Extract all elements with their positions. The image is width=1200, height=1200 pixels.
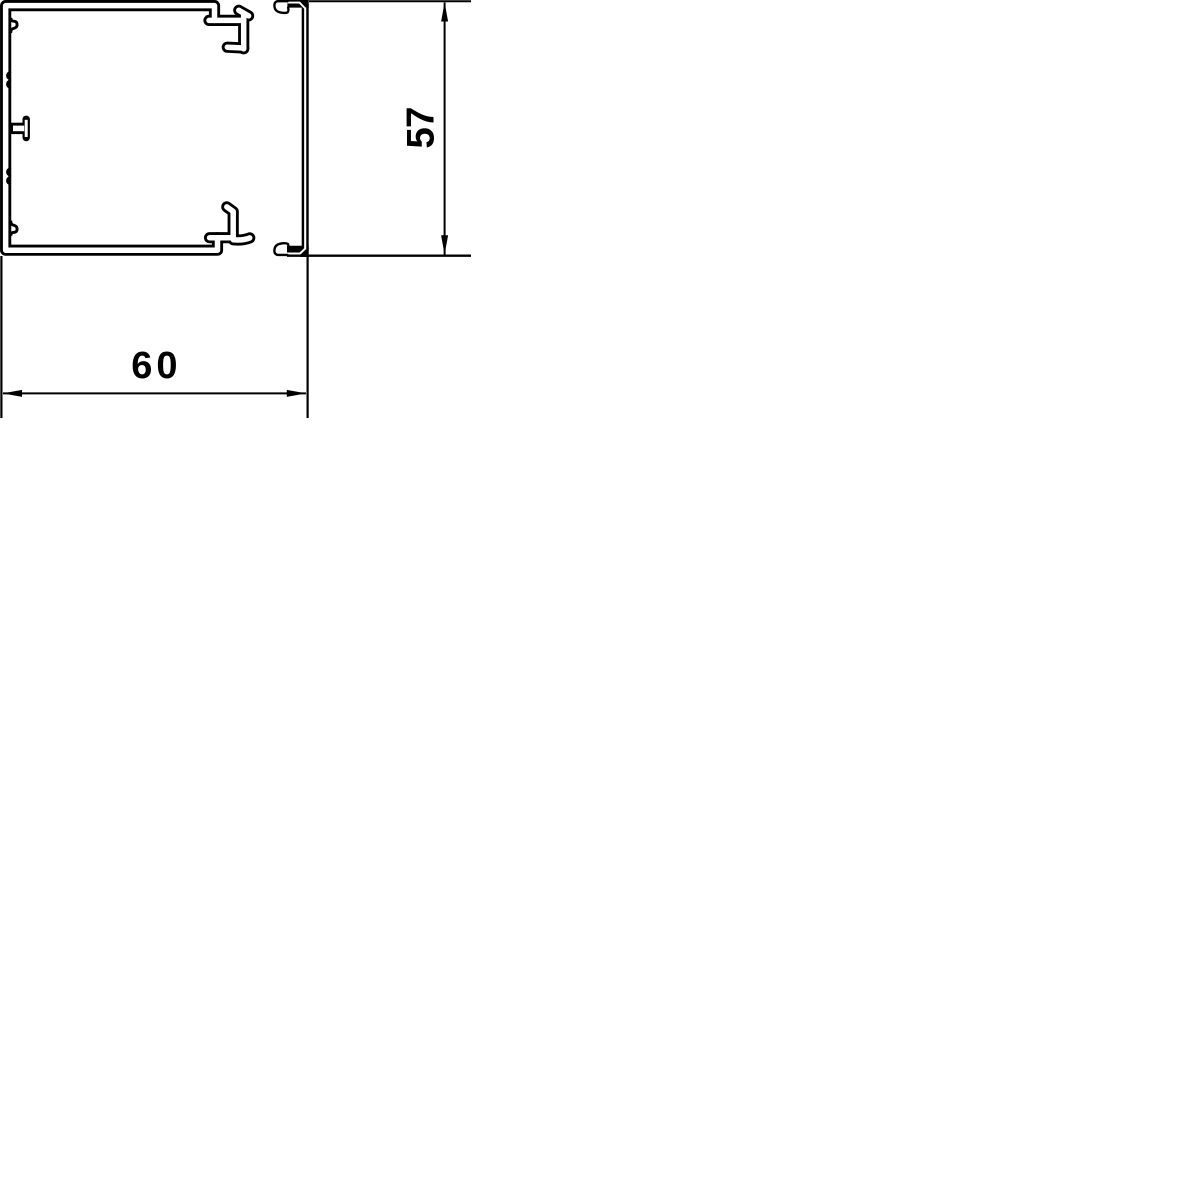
svg-text:57: 57: [399, 107, 442, 148]
svg-text:60: 60: [131, 345, 181, 387]
